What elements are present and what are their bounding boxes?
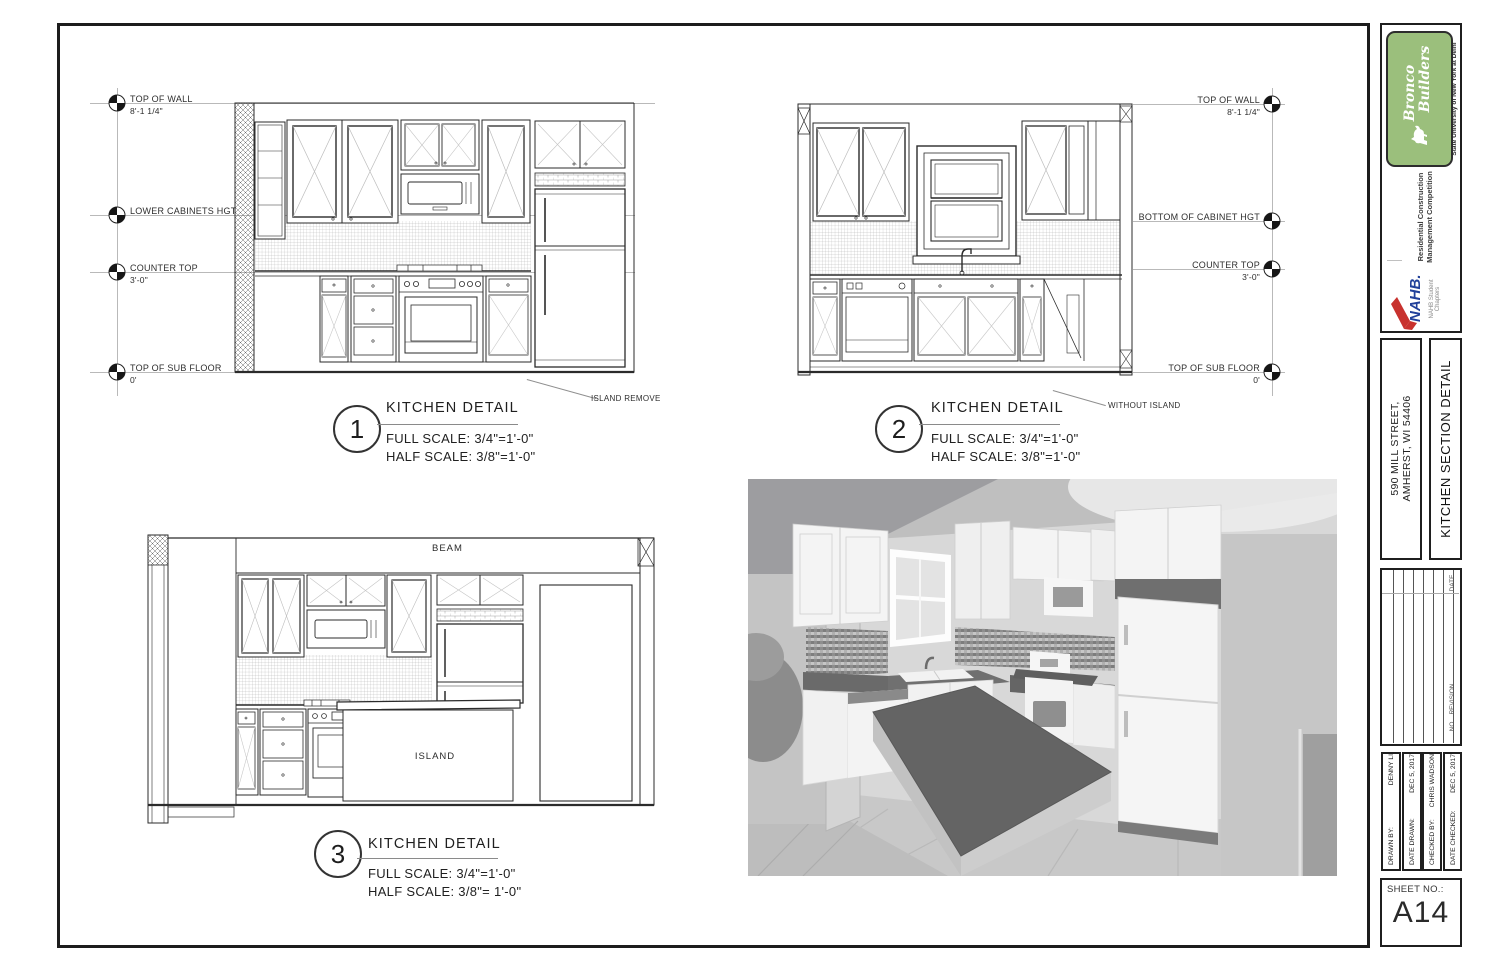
kitchen-3d-rendering xyxy=(748,479,1337,876)
revision-grid-line xyxy=(1393,570,1394,743)
datum-marker-icon xyxy=(1263,260,1281,278)
revision-grid-line xyxy=(1413,570,1414,743)
upper-cabinet-right xyxy=(482,120,530,223)
corner-cabinet-angled xyxy=(1044,279,1084,361)
nahb-wordmark: NAHB. xyxy=(1407,275,1422,323)
render-microwave xyxy=(1044,577,1093,617)
sheet-number-label: SHEET NO.: xyxy=(1382,880,1460,895)
doorway-opening xyxy=(540,585,632,801)
refrigerator xyxy=(437,624,523,703)
detail-number-text: 1 xyxy=(350,414,364,445)
detail-2-half-scale: HALF SCALE: 3/8"=1'-0" xyxy=(931,449,1080,464)
detail-1-annotation: ISLAND REMOVE xyxy=(591,394,661,403)
detail-2-title-underline xyxy=(919,424,1060,425)
datum-marker-icon xyxy=(1263,95,1281,113)
sheet-number-box: SHEET NO.: A14 xyxy=(1380,878,1462,947)
wall-section xyxy=(235,103,254,372)
datum-marker-icon xyxy=(1263,212,1281,230)
detail-3-full-scale: FULL SCALE: 3/4"=1'-0" xyxy=(368,866,516,881)
datum-vertical-line xyxy=(117,88,118,396)
checked-by-label: CHECKED BY: xyxy=(1429,819,1436,865)
revision-header-date: DATE xyxy=(1446,571,1459,595)
drawer-stack xyxy=(260,709,306,795)
detail-1-title-underline xyxy=(377,424,518,425)
dishwasher xyxy=(842,279,912,361)
upper-cabinet-doors xyxy=(287,120,398,223)
range-oven xyxy=(399,276,483,362)
detail-number-text: 3 xyxy=(331,839,345,870)
datum-label: COUNTER TOP xyxy=(130,263,198,273)
datum-value: 8'-1 1/4" xyxy=(130,106,163,116)
left-post xyxy=(798,104,810,375)
nahb-chapters-label: NAHB Student Chapters xyxy=(1426,271,1444,327)
logo-company-line2: Builders xyxy=(1418,46,1433,122)
date-checked-value: DEC 5, 2017 xyxy=(1449,754,1456,793)
base-cabinet-right xyxy=(1020,279,1044,361)
kitchen-elevation-2-drawing xyxy=(790,88,1140,400)
detail-2-annotation: WITHOUT ISLAND xyxy=(1108,401,1181,410)
datum-marker-icon xyxy=(1263,363,1281,381)
datum-value: 3'-0" xyxy=(130,275,148,285)
detail-1-title: KITCHEN DETAIL xyxy=(386,400,519,416)
revision-grid-line xyxy=(1443,570,1444,743)
base-cabinet-left xyxy=(810,279,840,361)
kitchen-elevation-3-drawing xyxy=(140,531,692,836)
tile-strip-over-fridge xyxy=(437,609,523,621)
detail-1-number: 1 xyxy=(333,405,381,453)
sheet-title-box: KITCHEN SECTION DETAIL xyxy=(1429,338,1462,560)
revision-table: DATE REVISION NO. xyxy=(1380,568,1462,746)
address-line1: 590 MILL STREET, xyxy=(1389,395,1401,501)
detail-3-half-scale: HALF SCALE: 3/8"= 1'-0" xyxy=(368,884,521,899)
microwave xyxy=(401,174,479,214)
backsplash-tile xyxy=(236,655,432,705)
cooktop-strip xyxy=(397,265,482,271)
render-refrigerator xyxy=(1118,597,1218,845)
cabinet-over-microwave xyxy=(307,575,385,606)
detail-3-number: 3 xyxy=(314,830,362,878)
window xyxy=(913,146,1020,264)
competition-line2: Management Competition xyxy=(1425,171,1434,263)
revision-grid-line xyxy=(1423,570,1424,743)
competition-line1: Residential Construction xyxy=(1416,171,1425,263)
cabinet-over-fridge xyxy=(535,121,625,168)
datum-label: TOP OF WALL xyxy=(130,94,193,104)
datum-value: 0' xyxy=(130,375,137,385)
revision-header-no: NO. xyxy=(1446,718,1459,733)
date-checked-strip: DATE CHECKED: DEC 5, 2017 xyxy=(1443,752,1463,871)
microwave xyxy=(307,610,385,648)
revision-grid-line xyxy=(1403,570,1404,743)
detail-2-full-scale: FULL SCALE: 3/4"=1'-0" xyxy=(931,431,1079,446)
revision-header-revision: REVISION xyxy=(1446,682,1459,716)
beam-label: BEAM xyxy=(432,543,463,554)
project-address-box: 590 MILL STREET, AMHERST, WI 54406 xyxy=(1380,338,1422,560)
upper-cabinets-right xyxy=(1022,121,1122,220)
sheet-title: KITCHEN SECTION DETAIL xyxy=(1432,342,1458,556)
cabinet-over-microwave xyxy=(401,120,479,170)
nahb-sub2: Chapters xyxy=(1435,279,1441,318)
sink-base-cabinet xyxy=(914,279,1018,361)
detail-1-half-scale: HALF SCALE: 3/8"=1'-0" xyxy=(386,449,535,464)
kitchen-elevation-1-drawing xyxy=(233,95,658,407)
bronco-builders-logo: Bronco Builders xyxy=(1386,31,1453,167)
date-drawn-label: DATE DRAWN: xyxy=(1408,818,1415,865)
base-cabinet-right xyxy=(486,276,531,362)
university-label: State University of New York at Delhi xyxy=(1448,31,1461,167)
datum-marker-icon xyxy=(108,94,126,112)
project-address: 590 MILL STREET, AMHERST, WI 54406 xyxy=(1384,342,1417,555)
detail-2-title: KITCHEN DETAIL xyxy=(931,400,1064,416)
logo-company-line1: Bronco xyxy=(1403,46,1418,122)
datum-label: TOP OF SUB FLOOR xyxy=(130,363,222,373)
render-window xyxy=(890,549,951,647)
checked-by-strip: CHECKED BY: CHRIS WADSON xyxy=(1422,752,1442,871)
right-post xyxy=(1120,104,1132,375)
refrigerator xyxy=(535,189,625,367)
detail-1-full-scale: FULL SCALE: 3/4"=1'-0" xyxy=(386,431,534,446)
base-cabinet-corner xyxy=(236,709,258,795)
drawn-by-label: DRAWN BY: xyxy=(1388,827,1395,865)
tile-strip-over-fridge xyxy=(535,173,625,186)
cabinet-over-fridge xyxy=(437,575,523,605)
datum-vertical-line xyxy=(1272,88,1273,396)
date-drawn-strip: DATE DRAWN: DEC 5, 2017 xyxy=(1402,752,1422,871)
island-label: ISLAND xyxy=(405,751,465,762)
backsplash-tile xyxy=(255,221,531,271)
revision-grid-line xyxy=(1433,570,1434,743)
date-drawn-value: DEC 5, 2017 xyxy=(1408,754,1415,793)
right-post xyxy=(638,538,654,805)
date-checked-label: DATE CHECKED: xyxy=(1449,810,1456,865)
open-shelf-unit xyxy=(255,122,285,239)
sheet-number-value: A14 xyxy=(1382,896,1460,930)
datum-marker-icon xyxy=(108,363,126,381)
datum-marker-icon xyxy=(108,263,126,281)
detail-3-title: KITCHEN DETAIL xyxy=(368,836,501,852)
upper-cabinet-doors xyxy=(238,575,304,657)
logo-divider xyxy=(1387,260,1402,261)
drawn-by-value: DENNY LI xyxy=(1388,754,1395,785)
left-door-frame xyxy=(148,535,234,823)
base-cabinet-corner xyxy=(320,276,348,362)
datum-label: LOWER CABINETS HGT xyxy=(130,206,237,216)
logos-box: Bronco Builders State University of New … xyxy=(1380,23,1462,333)
checked-by-value: CHRIS WADSON xyxy=(1429,754,1436,807)
horse-icon xyxy=(1408,124,1428,148)
nahb-logo: NAHB. xyxy=(1388,263,1422,331)
beam xyxy=(168,538,654,573)
drawer-stack xyxy=(351,276,396,362)
datum-marker-icon xyxy=(108,206,126,224)
address-line2: AMHERST, WI 54406 xyxy=(1401,395,1413,501)
drawn-by-strip: DRAWN BY: DENNY LI xyxy=(1381,752,1401,871)
render-right-wall xyxy=(1221,534,1337,876)
upper-cabinet-right xyxy=(387,575,431,657)
competition-label: Residential Construction Management Comp… xyxy=(1412,172,1438,262)
detail-number-text: 2 xyxy=(892,414,906,445)
upper-cabinets-left xyxy=(813,123,909,221)
detail-2-number: 2 xyxy=(875,405,923,453)
nahb-mark-icon: NAHB. xyxy=(1389,264,1422,330)
detail-3-title-underline xyxy=(357,858,498,859)
drawing-sheet-page: TOP OF WALL 8'-1 1/4" LOWER CABINETS HGT… xyxy=(0,0,1500,971)
